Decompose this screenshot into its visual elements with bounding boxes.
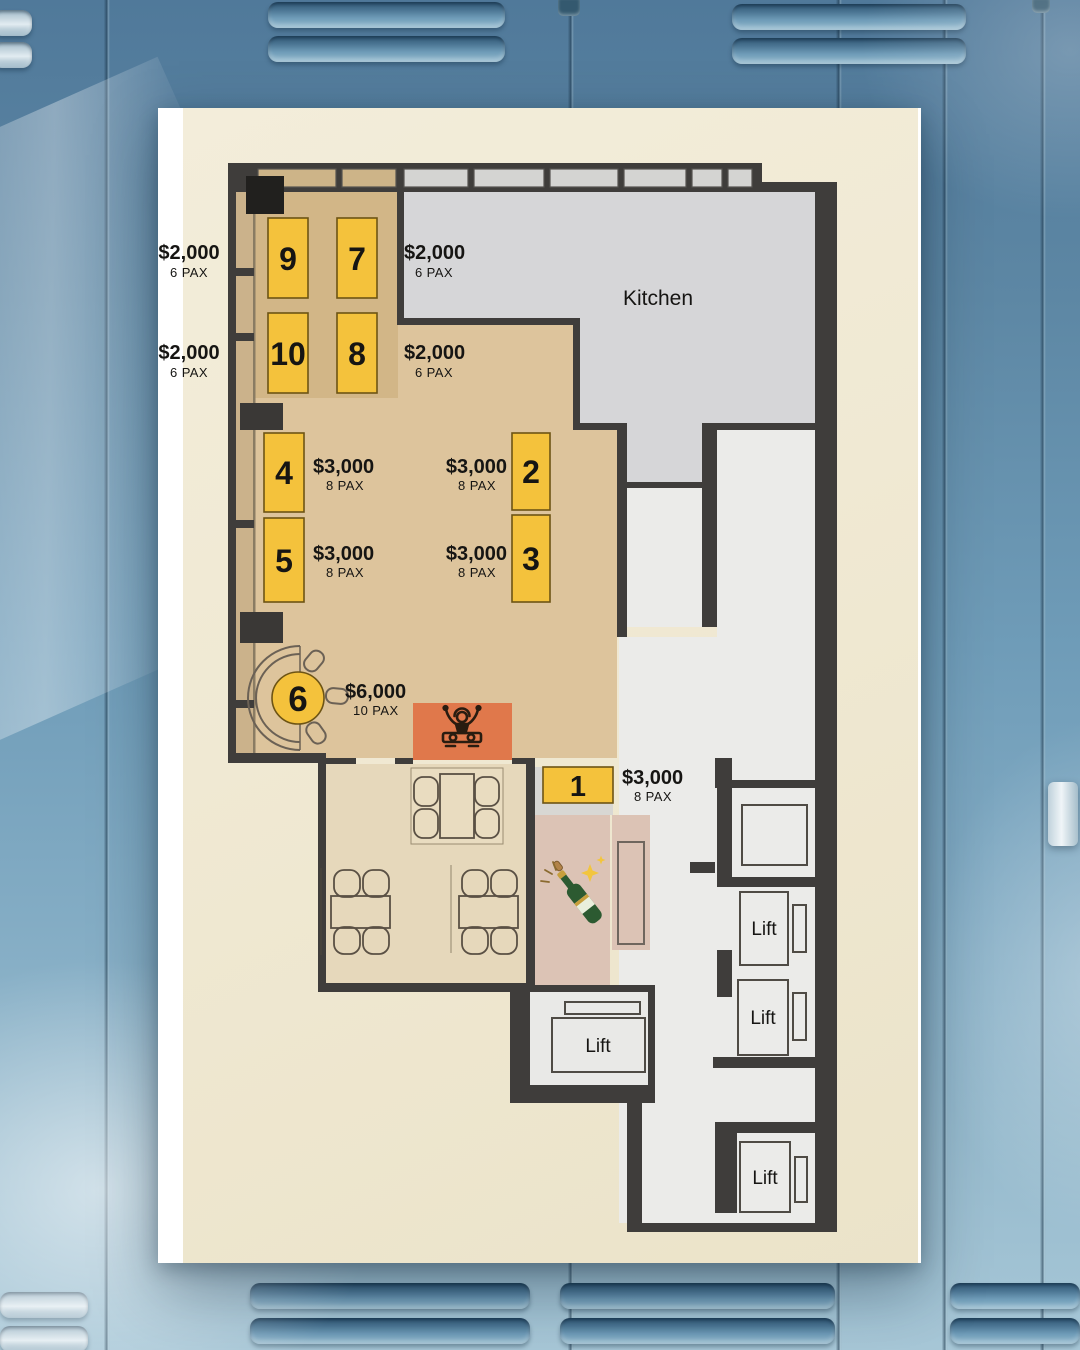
pax-label: 6 PAX <box>415 265 453 280</box>
table-number: 3 <box>522 541 540 577</box>
price-label: $3,000 <box>446 543 507 565</box>
pax-label: 10 PAX <box>353 703 399 718</box>
vip-entry-strip <box>532 803 613 815</box>
price-label: $6,000 <box>345 681 406 703</box>
floor-plan: 9 7 10 8 4 5 2 3 6 1 $2,000 6 PAX $2,000… <box>0 0 1080 1350</box>
window-band-line <box>253 192 256 753</box>
lift-label: Lift <box>750 1008 776 1029</box>
pax-label: 8 PAX <box>458 565 496 580</box>
pax-label: 8 PAX <box>458 478 496 493</box>
table-number: 1 <box>570 771 586 803</box>
price-label: $3,000 <box>313 543 374 565</box>
lift-label: Lift <box>752 1168 778 1189</box>
table-number: 6 <box>288 680 307 719</box>
table-number: 10 <box>270 336 306 372</box>
table-number: 9 <box>279 241 297 277</box>
corridor-floor <box>627 488 702 627</box>
top-wall-counters <box>258 169 752 187</box>
price-label: $2,000 <box>158 242 219 264</box>
table-number: 8 <box>348 336 366 372</box>
lift-label: Lift <box>585 1036 611 1057</box>
table-number: 4 <box>275 455 293 491</box>
pax-label: 6 PAX <box>170 265 208 280</box>
price-label: $2,000 <box>404 242 465 264</box>
price-label: $2,000 <box>404 342 465 364</box>
table-number: 2 <box>522 454 540 490</box>
pax-label: 6 PAX <box>170 365 208 380</box>
price-label: $2,000 <box>158 342 219 364</box>
window-band <box>236 192 254 753</box>
pax-label: 8 PAX <box>326 565 364 580</box>
lift-label: Lift <box>751 919 777 940</box>
pillar <box>240 612 283 643</box>
price-label: $3,000 <box>313 456 374 478</box>
pillar <box>240 403 283 430</box>
price-label: $3,000 <box>622 767 683 789</box>
pax-label: 8 PAX <box>634 789 672 804</box>
scene: 9 7 10 8 4 5 2 3 6 1 $2,000 6 PAX $2,000… <box>0 0 1080 1350</box>
pax-label: 6 PAX <box>415 365 453 380</box>
table-number: 5 <box>275 543 293 579</box>
pax-label: 8 PAX <box>326 478 364 493</box>
dj-booth <box>413 703 512 760</box>
corner-pillar <box>246 176 284 214</box>
table-number: 7 <box>348 241 366 277</box>
price-label: $3,000 <box>446 456 507 478</box>
vip-floor <box>532 815 610 985</box>
kitchen-label: Kitchen <box>623 287 693 310</box>
